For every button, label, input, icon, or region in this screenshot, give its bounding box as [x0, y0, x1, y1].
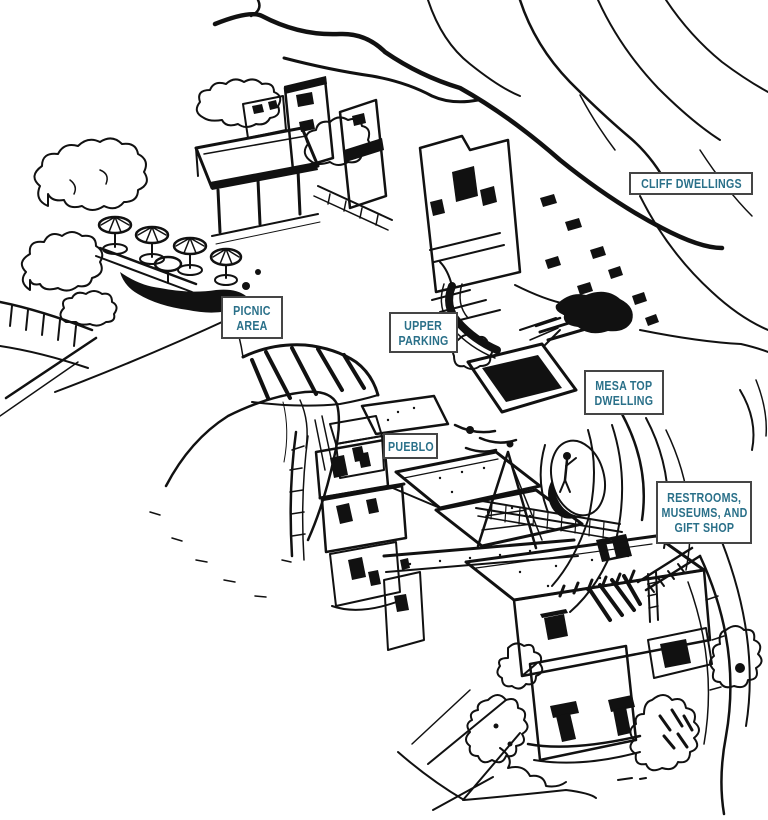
mound-drawing	[150, 392, 339, 597]
label-picnic-area: PICNIC AREA	[221, 296, 283, 339]
trees-drawing	[22, 79, 370, 325]
site-map: CLIFF DWELLINGS PICNIC AREA UPPER PARKIN…	[0, 0, 768, 820]
pueblo-drawing	[290, 396, 712, 763]
label-restrooms-museums-gift-shop: RESTROOMS, MUSEUMS, AND GIFT SHOP	[656, 481, 752, 544]
mesa-edge-drawing	[243, 345, 378, 406]
label-mesa-top-dwelling: MESA TOP DWELLING	[584, 370, 664, 415]
label-upper-parking: UPPER PARKING	[389, 312, 458, 353]
cliff-rim-drawing	[215, 0, 722, 248]
canyon-ground-drawing	[398, 542, 750, 814]
label-cliff-dwellings-text: CLIFF DWELLINGS	[641, 176, 742, 191]
label-pueblo: PUEBLO	[383, 433, 438, 459]
walkway-drawing	[0, 302, 243, 416]
label-cliff-dwellings: CLIFF DWELLINGS	[629, 172, 753, 195]
